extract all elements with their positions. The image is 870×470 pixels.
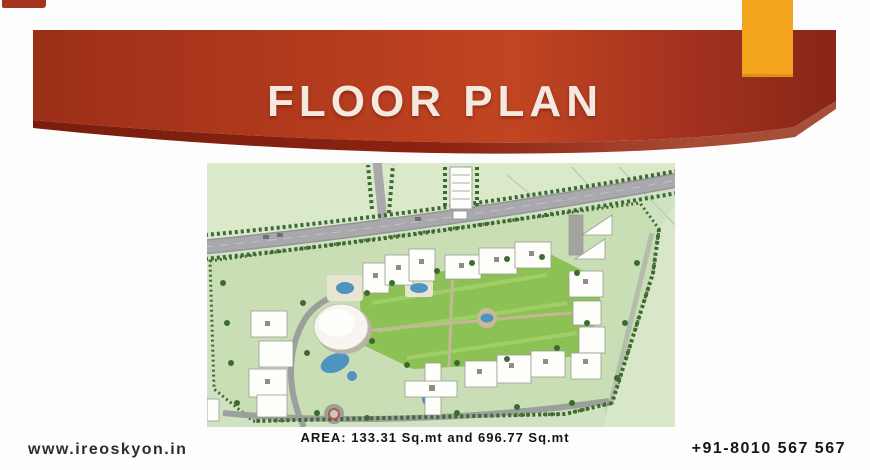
plan-fountain <box>329 409 339 419</box>
orange-accent-bar <box>742 0 793 77</box>
website-link[interactable]: www.ireoskyon.in <box>28 441 187 459</box>
slide-title: FLOOR PLAN <box>0 77 870 127</box>
phone-number: +91-8010 567 567 <box>692 440 846 458</box>
site-plan-image <box>207 163 675 427</box>
presentation-slide: FLOOR PLAN <box>0 0 870 470</box>
